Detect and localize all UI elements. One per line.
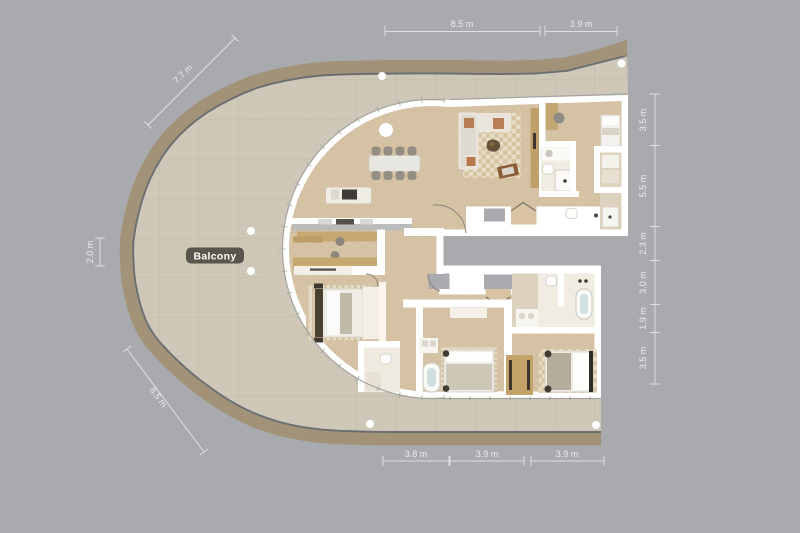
svg-text:5.5 m: 5.5 m (638, 175, 648, 198)
svg-text:2.3 m: 2.3 m (638, 232, 648, 255)
svg-text:3.5 m: 3.5 m (638, 347, 648, 370)
svg-text:8.5 m: 8.5 m (451, 19, 474, 29)
svg-text:3.9 m: 3.9 m (556, 449, 579, 459)
svg-text:Balcony: Balcony (194, 251, 237, 263)
svg-text:2.0 m: 2.0 m (85, 241, 95, 264)
svg-text:3.5 m: 3.5 m (638, 109, 648, 132)
svg-text:3.9 m: 3.9 m (476, 449, 499, 459)
svg-text:1.9 m: 1.9 m (638, 307, 648, 330)
svg-text:3.8 m: 3.8 m (405, 449, 428, 459)
svg-text:3.9 m: 3.9 m (570, 19, 593, 29)
svg-text:3.0 m: 3.0 m (638, 271, 648, 294)
